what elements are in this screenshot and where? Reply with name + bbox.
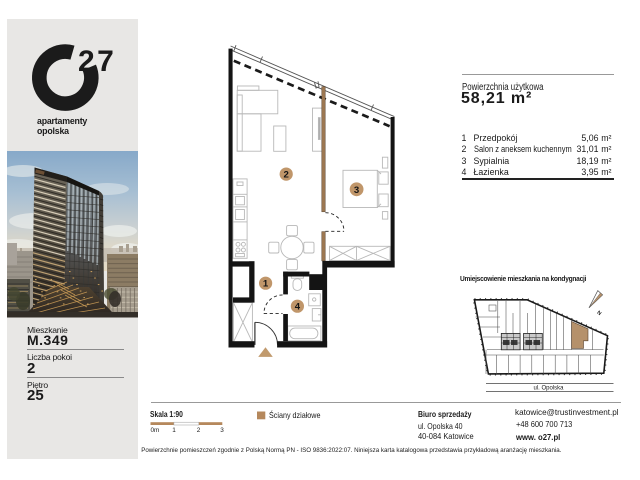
svg-text:3: 3: [354, 185, 359, 196]
svg-text:4: 4: [295, 302, 301, 313]
svg-text:N: N: [595, 310, 602, 317]
svg-text:1: 1: [263, 279, 269, 290]
svg-text:ul. Opolska: ul. Opolska: [533, 386, 564, 392]
svg-text:2: 2: [284, 170, 289, 181]
